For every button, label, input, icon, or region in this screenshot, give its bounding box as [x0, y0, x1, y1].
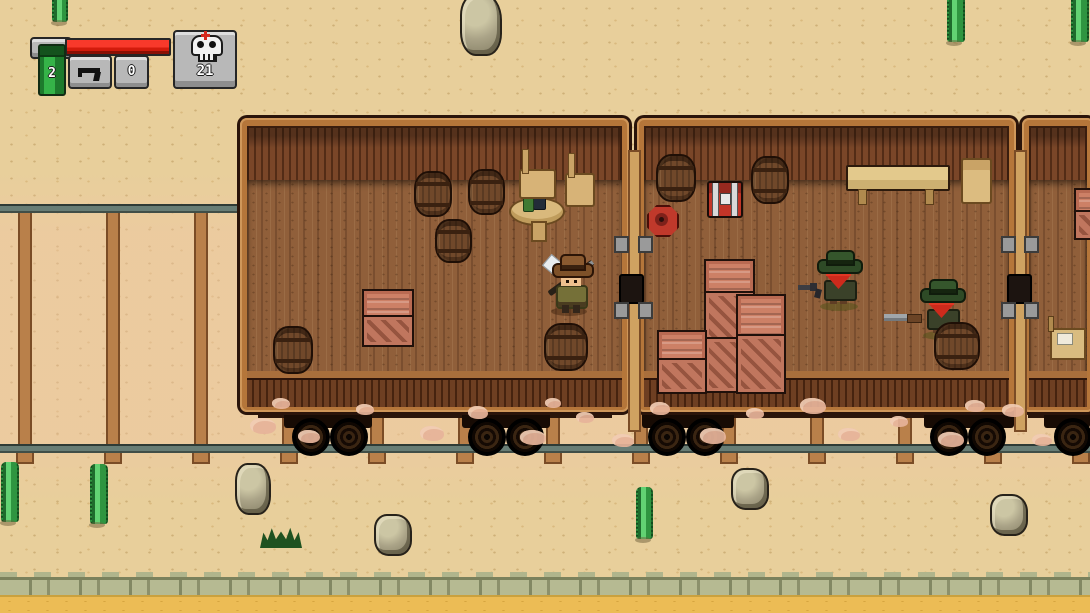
game-viewport[interactable]: 2 0 21: [0, 0, 1090, 613]
enemy-shadow: [820, 302, 858, 311]
dust: [250, 418, 276, 434]
dust: [890, 416, 908, 427]
skull-icon: [188, 33, 222, 61]
dust: [965, 400, 985, 412]
car3-top-wall: [1029, 126, 1087, 184]
small-desk: [1050, 328, 1086, 360]
player-leg: [562, 305, 569, 313]
crd: [736, 334, 786, 394]
player-character: [542, 249, 596, 315]
barrel: [656, 154, 696, 202]
health-bar-fill: [67, 40, 169, 54]
player-leg: [573, 305, 580, 313]
barrel: [273, 326, 313, 374]
cactus: [90, 464, 108, 524]
dust: [800, 398, 826, 414]
player-eye: [566, 280, 569, 283]
barrel: [435, 219, 472, 263]
rail-top: [0, 204, 246, 213]
dust: [700, 428, 726, 444]
crd: [1074, 210, 1090, 240]
rail-bottom: [0, 444, 1090, 453]
dust: [938, 432, 964, 447]
treasure-chest: [707, 181, 743, 218]
dust: [1002, 404, 1024, 417]
rock: [460, 0, 502, 56]
car1-bottom-wall: [247, 371, 622, 407]
table-pedestal: [531, 221, 547, 242]
dust: [545, 398, 561, 408]
wheel: [648, 418, 686, 456]
coup: [619, 274, 644, 304]
dynamite-cap: [40, 46, 64, 57]
crd: [362, 315, 414, 347]
rock: [235, 463, 271, 515]
kill-count: 21: [175, 63, 235, 79]
dust: [650, 402, 670, 415]
revolver-icon: [798, 283, 823, 299]
dpost: [1024, 236, 1039, 253]
coup: [1007, 274, 1032, 304]
rock: [731, 468, 769, 510]
dpost: [1001, 236, 1016, 253]
cactus: [1071, 0, 1089, 42]
rock: [374, 514, 412, 556]
dynamite-count: 2: [40, 66, 64, 81]
kill-counter: 21: [173, 30, 237, 89]
dynamite-stick-icon: 2: [38, 44, 66, 96]
wheel: [968, 418, 1006, 456]
chest-lock: [720, 193, 731, 205]
wheel: [1054, 418, 1090, 456]
crd: [657, 358, 707, 394]
dpost: [638, 302, 653, 319]
barrel: [544, 323, 588, 371]
ammo-count: 0: [116, 64, 147, 79]
rock: [990, 494, 1028, 536]
weapon-slot: [68, 55, 112, 89]
dpost: [614, 302, 629, 319]
wheel: [468, 418, 506, 456]
enemy-bandit-1: [813, 250, 867, 316]
dpost: [1001, 302, 1016, 319]
dust: [838, 428, 860, 441]
dust: [272, 398, 290, 409]
barrel: [414, 171, 452, 217]
dust: [356, 404, 374, 415]
dpost: [638, 236, 653, 253]
dust: [576, 412, 594, 423]
desk-post: [1048, 316, 1054, 332]
hud: 2 0 21: [28, 28, 240, 98]
cactus: [636, 487, 653, 539]
chair: [519, 169, 556, 199]
player-hat-crown: [560, 254, 586, 271]
car2-top-wall: [644, 126, 1009, 184]
barrel: [751, 156, 789, 204]
tie: [194, 206, 208, 448]
dpost: [614, 236, 629, 253]
grass: [260, 526, 302, 548]
cactus: [52, 0, 68, 22]
dust: [420, 426, 444, 441]
cactus: [947, 0, 965, 42]
long-table: [846, 165, 950, 191]
dust: [468, 406, 488, 419]
barrel-front-of-enemy: [934, 322, 980, 370]
ammo-slot: 0: [114, 55, 149, 89]
wheel: [330, 418, 368, 456]
tie: [18, 206, 32, 448]
dpost: [1024, 302, 1039, 319]
train-car-3: [1022, 118, 1090, 412]
pistol-icon: [78, 66, 102, 80]
chair: [961, 158, 992, 204]
chair: [565, 173, 595, 207]
player-eye: [574, 280, 577, 283]
tie: [106, 206, 120, 448]
enemy-hat-crown: [929, 279, 958, 295]
enemy-hat-crown: [826, 250, 855, 266]
health-bar: [65, 38, 171, 56]
dust: [612, 434, 634, 447]
lower-sand-strip: [0, 595, 1090, 613]
dust: [520, 430, 546, 445]
dust: [746, 408, 764, 419]
barrel: [468, 169, 505, 215]
shotgun-icon: [884, 314, 922, 326]
dust: [1032, 434, 1052, 446]
player-body: [556, 285, 588, 309]
cactus: [1, 462, 19, 522]
car3-bottom-wall: [1029, 371, 1087, 407]
dust: [298, 430, 320, 443]
